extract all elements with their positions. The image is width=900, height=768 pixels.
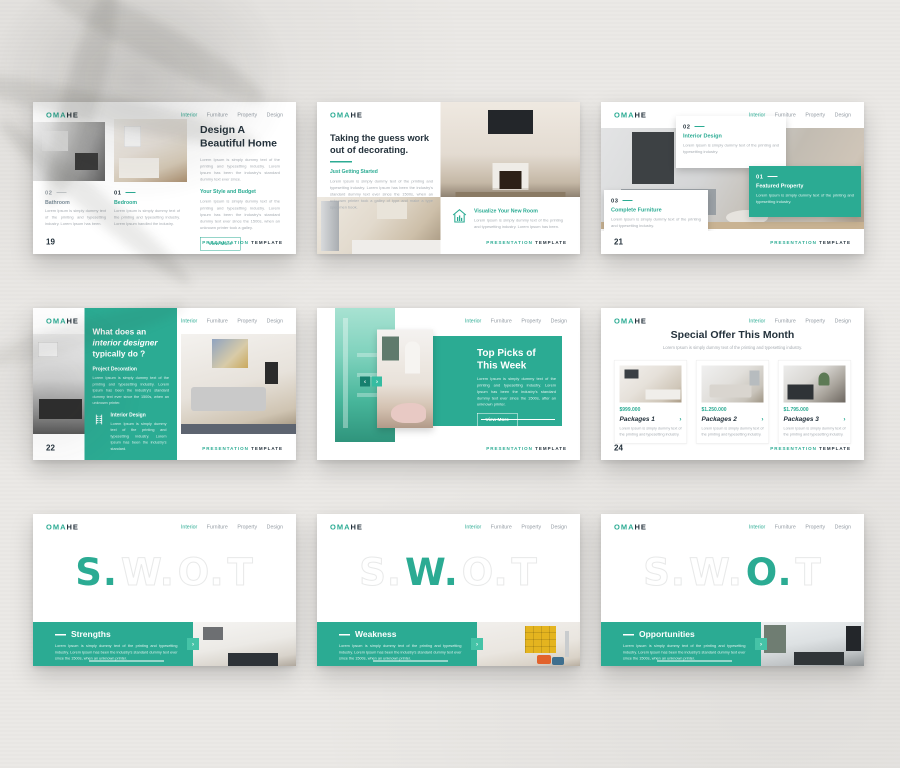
slide-header: OMAHE Interior Furniture Property Design [33,308,296,334]
band-heading: Weakness [355,630,396,640]
slide-title: Taking the guess work out of decorating. [330,132,433,156]
dash-decoration [339,634,350,636]
card-text: Lorem Ipsum is simply dummy text of the … [45,208,106,227]
nav-item-property[interactable]: Property [237,524,257,530]
section-subheading: Just Getting Started [330,169,433,175]
page-number: 21 [614,238,623,247]
card-title: Featured Property [756,183,854,189]
slide-nav: Interior Furniture Property Design [749,112,851,118]
slide-swot-opportunities: OMAHE Interior Furniture Property Design… [601,514,864,666]
page-number: 24 [614,444,623,453]
band-heading-row: Weakness [339,630,477,640]
island-decor [228,653,278,666]
complete-furniture-card: 03 Complete Furniture Lorem Ipsum is sim… [604,190,708,236]
featured-property-card: 01 Featured Property Lorem Ipsum is simp… [749,166,861,217]
title-line-3: typically do ? [93,349,146,358]
band-underline [373,661,448,662]
brand-logo-primary: OMA [330,523,351,532]
swot-letter-s: S. [359,554,402,591]
nav-item-furniture[interactable]: Furniture [491,318,512,324]
dining-room-photo [761,622,864,666]
card-title: Complete Furniture [611,207,701,213]
swot-letter-w: W. [689,554,743,591]
brand-logo: OMAHE [614,317,647,326]
slide-header: OMAHE Interior Furniture Property Design [601,514,864,540]
slide-24: OMAHE Interior Furniture Property Design… [601,308,864,460]
card-number: 02 [45,190,52,196]
card-text: Lorem Ipsum is simply dummy text of the … [114,208,180,227]
brand-logo-secondary: HE [635,111,647,120]
swot-letters: S. W. O. T [317,554,580,591]
nav-item-design[interactable]: Design [267,524,283,530]
slide-footer: PRESENTATION TEMPLATE [317,437,580,460]
slide-footer: 24 PRESENTATION TEMPLATE [601,437,864,460]
slide-header: OMAHE Interior Furniture Property Design [33,102,296,128]
dash-decoration [622,200,632,201]
lamp-decor [265,362,278,384]
teal-content-panel: Top Picks of This Week Lorem Ipsum is si… [433,336,562,426]
nav-item-furniture[interactable]: Furniture [775,318,796,324]
brand-logo-secondary: HE [351,111,363,120]
package-name-row: Packages 2 › [702,415,764,423]
template-preview-board: { "brand": {"logo_teal": "OMA", "logo_da… [0,0,900,768]
body-paragraph: Lorem Ipsum is simply dummy text of the … [477,376,556,408]
orange-cushion-decor [537,655,551,664]
title-line-2: interior designer [93,338,158,347]
body-paragraph: Lorem Ipsum is simply dummy text of the … [330,178,433,211]
card-number: 03 [611,198,618,204]
rug-decor [181,424,296,434]
slide-thumbnail-swot-o: OMAHE Interior Furniture Property Design… [601,514,864,666]
footer-word-1: PRESENTATION [202,446,249,451]
rug-decor [456,192,566,197]
slide-thumbnail-23: Top Picks of This Week Lorem Ipsum is si… [317,308,580,460]
package-price: $999.000 [620,407,682,413]
nav-item-property[interactable]: Property [805,112,825,118]
brand-logo: OMAHE [46,317,79,326]
dash-decoration [125,192,135,193]
card-text: Lorem Ipsum is simply dummy text of the … [683,142,779,155]
package-price: $1.250.000 [702,407,764,413]
package-name-row: Packages 3 › [784,415,846,423]
nav-item-property[interactable]: Property [521,318,541,324]
nav-item-interior[interactable]: Interior [749,112,765,118]
island-decor [646,390,681,400]
photo-decor [124,126,141,147]
bathroom-photo [33,122,105,181]
presentation-template-label: PRESENTATION TEMPLATE [486,240,567,245]
panel-underline [481,419,555,420]
nav-item-design[interactable]: Design [267,318,283,324]
vanity-photo [377,330,433,429]
sofa-decor [191,387,266,411]
presentation-template-label: PRESENTATION TEMPLATE [202,240,283,245]
brand-logo-primary: OMA [614,523,635,532]
body-paragraph: Lorem Ipsum is simply dummy text of the … [200,198,280,231]
slide-header: OMAHE Interior Furniture Property Design [601,308,864,334]
brand-logo: OMAHE [46,523,79,532]
nav-item-interior[interactable]: Interior [465,524,481,530]
carousel-arrows: ‹ › [360,377,382,387]
brand-logo-primary: OMA [46,111,67,120]
window-decor [764,625,786,653]
dash-decoration [623,634,634,636]
nav-item-furniture[interactable]: Furniture [207,112,228,118]
railing-decor [343,318,348,428]
nav-item-design[interactable]: Design [835,524,851,530]
plant-decor [819,373,830,386]
card-number-row: 01 [114,188,180,197]
nav-item-design[interactable]: Design [267,112,283,118]
shelf-decor [846,626,861,651]
brand-logo: OMAHE [614,523,647,532]
swot-letters: S. W. O. T [601,554,864,591]
slide-thumbnail-20: OMAHE Taking the guess work out of decor… [317,102,580,254]
slide-nav: Interior Furniture Property Design [749,318,851,324]
slide-nav: Interior Furniture Property Design [749,524,851,530]
brand-logo: OMAHE [330,523,363,532]
band-underline [657,661,732,662]
slide-nav: Interior Furniture Property Design [181,524,283,530]
slide-header: OMAHE Interior Furniture Property Design [33,514,296,540]
slide-title: Top Picks of This Week [477,347,557,372]
nav-item-furniture[interactable]: Furniture [207,524,228,530]
nav-item-furniture[interactable]: Furniture [775,112,796,118]
brand-logo: OMAHE [330,111,363,120]
slide-thumbnail-21: OMAHE Interior Furniture Property Design… [601,102,864,254]
photo-decor [42,131,68,151]
footer-word-2: TEMPLATE [535,240,567,245]
card-text: Lorem Ipsum is simply dummy text of the … [611,216,701,229]
band-paragraph: Lorem Ipsum is simply dummy text of the … [623,643,746,662]
intro-paragraph: Lorem Ipsum is simply dummy text of the … [200,156,280,182]
footer-word-2: TEMPLATE [535,446,567,451]
slide-thumbnail-19: OMAHE Interior Furniture Property Design… [33,102,296,254]
brand-logo-primary: OMA [614,317,635,326]
band-heading: Opportunities [639,630,695,640]
slide-header: OMAHE Interior Furniture Property Design [601,102,864,128]
strengths-band: Strengths Lorem Ipsum is simply dummy te… [33,622,193,666]
feature-title: Interior Design [111,412,167,418]
hood-decor [203,627,223,640]
swot-letter-t: T [796,554,822,591]
swot-letter-s: S. [75,554,118,591]
package-photo [784,366,846,403]
nav-item-interior[interactable]: Interior [749,524,765,530]
slide-footer: 19 PRESENTATION TEMPLATE [33,231,296,254]
slide-23: Top Picks of This Week Lorem Ipsum is si… [317,308,580,460]
brand-logo-secondary: HE [351,523,363,532]
card-title: Interior Design [683,133,779,139]
footer-word-1: PRESENTATION [770,446,817,451]
body-paragraph: Lorem Ipsum is simply dummy text of the … [93,375,170,406]
card-number: 01 [756,174,763,180]
page-number: 22 [46,444,55,453]
package-photo [702,366,764,403]
package-photo [620,366,682,403]
swot-letter-o: O. [178,554,225,591]
swot-letter-w: W. [121,554,175,591]
packages-row: $999.000 Packages 1 › Lorem Ipsum is sim… [614,360,851,443]
nav-item-property[interactable]: Property [237,112,257,118]
footer-word-2: TEMPLATE [251,240,283,245]
next-arrow-button[interactable]: › [755,638,767,650]
card-number-row: 02 [45,188,106,197]
nav-item-design[interactable]: Design [551,318,567,324]
next-arrow-button[interactable]: › [187,638,199,650]
next-arrow-button[interactable]: › [471,638,483,650]
presentation-template-label: PRESENTATION TEMPLATE [202,446,283,451]
chevron-right-icon[interactable]: › [761,415,763,423]
title-underline [330,161,352,163]
fireplace-decor [500,171,522,189]
feature-body: Lorem Ipsum is simply dummy text of the … [474,217,563,230]
footer-word-1: PRESENTATION [202,240,249,245]
brand-logo: OMAHE [614,111,647,120]
piano-decor [39,399,82,419]
nav-item-interior[interactable]: Interior [465,318,481,324]
footer-word-2: TEMPLATE [251,446,283,451]
card-title: Bathroom [45,200,106,206]
nav-item-furniture[interactable]: Furniture [207,318,228,324]
nav-item-interior[interactable]: Interior [181,318,197,324]
swot-letter-t: T [228,554,254,591]
sofa-room-photo [181,334,296,434]
dining-set-decor [794,652,844,665]
nav-item-interior[interactable]: Interior [181,112,197,118]
package-name: Packages 3 [784,415,819,423]
nav-item-property[interactable]: Property [805,524,825,530]
slides-grid: OMAHE Interior Furniture Property Design… [33,102,864,666]
window-decor [750,371,760,386]
package-name: Packages 1 [620,415,655,423]
package-card-3[interactable]: $1.795.000 Packages 3 › Lorem Ipsum is s… [778,360,851,443]
mono-room-photo [33,334,88,434]
leaf-shadow [17,0,273,115]
brand-logo-primary: OMA [330,111,351,120]
brand-logo-secondary: HE [635,317,647,326]
dash-decoration [767,176,777,177]
slide-22: OMAHE Interior Furniture Property Design [33,308,296,460]
section-subheading: Project Decoration [93,367,170,373]
nav-item-interior[interactable]: Interior [749,318,765,324]
slide-21: OMAHE Interior Furniture Property Design… [601,102,864,254]
nav-item-property[interactable]: Property [521,524,541,530]
slide-swot-weakness: OMAHE Interior Furniture Property Design… [317,514,580,666]
nav-item-design[interactable]: Design [551,524,567,530]
slide-header: OMAHE [317,102,580,128]
package-name-row: Packages 1 › [620,415,682,423]
weakness-band: Weakness Lorem Ipsum is simply dummy tex… [317,622,477,666]
slide-nav: Interior Furniture Property Design [181,318,283,324]
chevron-right-icon[interactable]: › [679,415,681,423]
nav-item-design[interactable]: Design [835,112,851,118]
yellow-shelf-photo [477,622,580,666]
band-paragraph: Lorem Ipsum is simply dummy text of the … [339,643,462,662]
swot-letter-w: W. [405,554,459,591]
slide-swot-strengths: OMAHE Interior Furniture Property Design… [33,514,296,666]
footer-word-2: TEMPLATE [819,240,851,245]
swot-letter-o: O. [462,554,509,591]
slide-subtitle: Lorem Ipsum is simply dummy text of the … [601,345,864,350]
package-card-2[interactable]: $1.250.000 Packages 2 › Lorem Ipsum is s… [696,360,769,443]
slide-nav: Interior Furniture Property Design [181,112,283,118]
slide-thumbnail-24: OMAHE Interior Furniture Property Design… [601,308,864,460]
footer-word-1: PRESENTATION [486,446,533,451]
footer-word-1: PRESENTATION [486,240,533,245]
carousel-prev-button[interactable]: ‹ [360,377,370,387]
footer-word-1: PRESENTATION [770,240,817,245]
photo-decor [75,153,98,170]
slide-header: OMAHE Interior Furniture Property Design [317,514,580,540]
band-heading-row: Opportunities [623,630,761,640]
nav-item-furniture[interactable]: Furniture [491,524,512,530]
opportunities-band: Opportunities Lorem Ipsum is simply dumm… [601,622,761,666]
dash-decoration [56,192,66,193]
brand-logo-secondary: HE [67,523,79,532]
band-underline [89,661,164,662]
brand-logo-secondary: HE [635,523,647,532]
main-content: Taking the guess work out of decorating.… [330,132,433,211]
package-card-1[interactable]: $999.000 Packages 1 › Lorem Ipsum is sim… [614,360,687,443]
slide-nav: Interior Furniture Property Design [465,318,567,324]
card-title: Bedroom [114,200,180,206]
blue-cushion-decor [552,657,564,665]
nav-item-design[interactable]: Design [835,318,851,324]
gown-decor [405,342,420,374]
swot-letter-t: T [512,554,538,591]
feature-title: Visualize Your New Room [474,208,563,214]
sofa-decor [710,385,752,398]
card-number-row: 01 [756,172,854,181]
feature-block: Visualize Your New Room Lorem Ipsum is s… [451,208,574,230]
swot-letter-o: O. [746,554,793,591]
slide-thumbnail-swot-s: OMAHE Interior Furniture Property Design… [33,514,296,666]
swot-letters: S. W. O. T [33,554,296,591]
dash-decoration [55,634,66,636]
nav-item-property[interactable]: Property [805,318,825,324]
carousel-next-button[interactable]: › [372,377,382,387]
brand-logo-primary: OMA [46,317,67,326]
presentation-template-label: PRESENTATION TEMPLATE [486,446,567,451]
card-text: Lorem Ipsum is simply dummy text of the … [756,192,854,205]
swot-letter-s: S. [643,554,686,591]
slide-footer: 21 PRESENTATION TEMPLATE [601,231,864,254]
footer-word-2: TEMPLATE [819,446,851,451]
bathroom-card: 02 Bathroom Lorem Ipsum is simply dummy … [45,188,106,227]
slide-20: OMAHE Taking the guess work out of decor… [317,102,580,254]
brand-logo-secondary: HE [67,111,79,120]
presentation-template-label: PRESENTATION TEMPLATE [770,240,851,245]
brand-logo-primary: OMA [614,111,635,120]
brand-logo-secondary: HE [67,317,79,326]
nav-item-interior[interactable]: Interior [181,524,197,530]
band-heading-row: Strengths [55,630,193,640]
card-number: 01 [114,190,121,196]
section-subheading: Your Style and Budget [200,189,280,195]
slide-nav: Interior Furniture Property Design [465,524,567,530]
slide-19: OMAHE Interior Furniture Property Design… [33,102,296,254]
package-price: $1.795.000 [784,407,846,413]
brand-logo-primary: OMA [46,523,67,532]
card-number-row: 03 [611,196,701,205]
slide-header: Interior Furniture Property Design [317,308,580,334]
nav-item-property[interactable]: Property [237,318,257,324]
mirror-decor [382,337,399,361]
kitchen-photo [193,622,296,666]
band-paragraph: Lorem Ipsum is simply dummy text of the … [55,643,178,662]
cabinet-decor [788,385,814,400]
brand-logo: OMAHE [46,111,79,120]
presentation-template-label: PRESENTATION TEMPLATE [770,446,851,451]
slide-thumbnail-swot-w: OMAHE Interior Furniture Property Design… [317,514,580,666]
chevron-right-icon[interactable]: › [843,415,845,423]
nav-item-furniture[interactable]: Furniture [775,524,796,530]
house-chart-icon [451,208,468,224]
bedroom-photo [114,119,187,182]
painting-decor [212,339,248,368]
package-name: Packages 2 [702,415,737,423]
slide-footer: PRESENTATION TEMPLATE [317,231,580,254]
band-heading: Strengths [71,630,111,640]
slide-thumbnail-22: OMAHE Interior Furniture Property Design [33,308,296,460]
blanket-decor [391,403,426,423]
yellow-grid-shelf-decor [525,626,556,653]
frame-decor [38,342,58,357]
bedroom-card: 01 Bedroom Lorem Ipsum is simply dummy t… [114,188,180,227]
shelf-comb-icon [93,412,106,426]
range-hood-decor [625,370,639,379]
art-decor [632,132,674,184]
feature-texts: Visualize Your New Room Lorem Ipsum is s… [474,208,563,230]
page-number: 19 [46,238,55,247]
slide-footer: 22 PRESENTATION TEMPLATE [33,437,296,460]
lamp-decor [565,631,569,657]
photo-decor [119,158,159,178]
